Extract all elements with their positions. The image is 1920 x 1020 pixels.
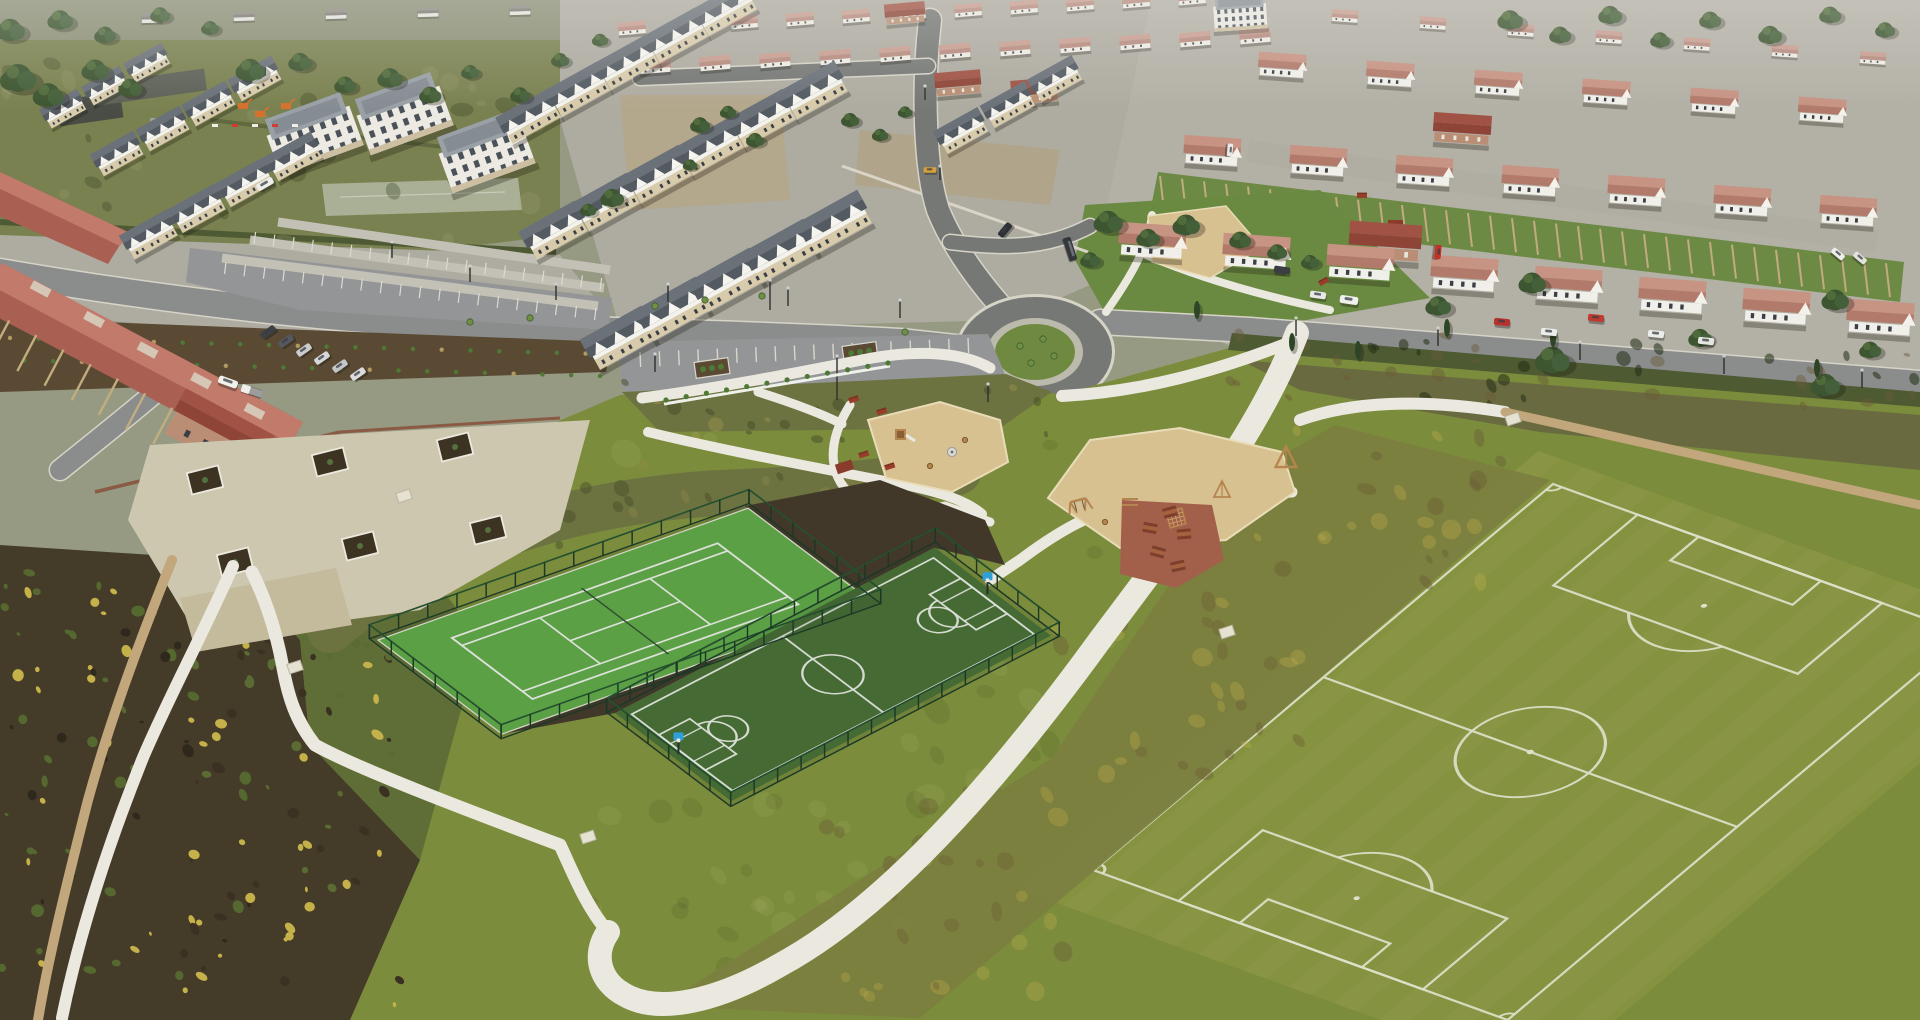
window [1288,71,1291,75]
verge-plant [468,348,472,352]
canopy [1885,26,1896,37]
canopy-highlight [583,204,589,210]
lamp-head [1722,354,1725,357]
window [1576,293,1580,298]
lamp-head [1294,316,1297,319]
house-pink [999,40,1032,60]
canopy-highlight [1084,253,1091,260]
window [720,66,722,68]
traffic-barrier [232,124,238,127]
window [1658,303,1662,308]
window [1244,40,1246,42]
window [1877,61,1879,63]
window [1218,18,1221,22]
verge-plant [411,347,415,351]
window [1870,60,1872,62]
window [824,61,826,63]
window [965,13,967,15]
car [1432,244,1442,260]
window [1246,8,1249,12]
verge-plant [555,351,559,355]
window [1028,9,1030,11]
canopy [300,57,312,69]
window [1252,39,1254,41]
canopy [520,91,531,102]
window [1239,16,1242,20]
canopy-highlight [1654,33,1661,40]
canopy [10,24,25,39]
window [917,17,919,20]
window [1604,98,1607,102]
canopy-highlight [1763,27,1771,35]
window [1124,46,1126,48]
canopy [160,11,171,22]
window [1232,17,1235,21]
window [1855,324,1859,329]
house-pink [1059,37,1092,57]
window [1200,42,1202,44]
bay-line [659,351,660,366]
cypress-body [1444,319,1450,337]
window [1064,49,1066,51]
window [1423,25,1425,27]
window [1239,8,1242,12]
car [1225,143,1234,157]
window [1430,25,1432,27]
house-gray [509,5,531,17]
bay-line [814,345,815,360]
canopy [430,91,442,103]
window [1200,157,1203,161]
window [772,63,774,65]
canopy-highlight [123,80,131,88]
screen-plant [865,364,870,369]
window [1396,80,1399,84]
window [1225,17,1228,21]
house-pink [618,21,647,39]
window [1004,52,1006,54]
window [1480,88,1483,92]
house-pink [759,52,792,72]
window [1264,260,1268,265]
canopy [612,193,624,205]
window [1190,156,1193,160]
lamp-head [1578,340,1581,343]
front [510,11,531,15]
canopy [880,132,889,141]
canopy [1870,346,1882,358]
window [1368,271,1372,276]
verge-plant [310,366,314,370]
canopy [250,64,265,79]
window [1820,116,1823,120]
sapling [902,329,908,335]
window [1712,107,1715,111]
window [1525,33,1527,35]
window [1863,60,1865,62]
canopy-highlight [1823,8,1831,16]
window [1845,218,1848,222]
sapling [1017,343,1023,349]
window [764,64,766,66]
verge-plant [497,349,501,353]
window [1739,208,1742,212]
window [1084,6,1086,8]
verge-plant [51,359,55,363]
texture-blotch [1115,757,1127,765]
canopy-highlight [685,160,690,165]
bay-line [833,344,834,359]
canopy-highlight [1703,13,1711,21]
lamp-head [653,352,656,355]
window [1431,178,1434,182]
window [1701,47,1703,49]
window [1749,208,1752,212]
bay-line [756,347,757,362]
canopy-highlight [1603,7,1611,15]
canopy-highlight [1523,274,1533,284]
window [1192,42,1194,44]
cypress-body [1194,301,1200,319]
canopy-highlight [1502,11,1511,20]
window [1080,48,1082,50]
window [958,13,960,15]
canopy [1510,15,1523,28]
sapling [759,293,765,299]
canopy [1186,220,1200,234]
front [234,17,255,21]
window [1402,176,1405,180]
window [1518,187,1521,191]
verge-plant [252,364,256,368]
canopy-highlight [1430,297,1439,306]
lamp-head [835,354,838,357]
window [1613,40,1615,42]
verge-plant [454,370,458,374]
window [1325,168,1328,172]
window [1231,258,1235,263]
window [1306,167,1309,171]
window [1335,18,1337,20]
window [1720,107,1723,111]
canopy-highlight [554,54,560,60]
verge-plant [209,341,213,345]
window [1072,48,1074,50]
window [1264,70,1267,74]
sapling [527,315,533,321]
canopy-highlight [7,66,20,79]
canopy [1108,216,1123,231]
window [1643,198,1646,202]
canopy-highlight [844,114,850,120]
basketball-hoop [676,738,680,742]
house-pink [1066,0,1095,14]
verge-plant [425,369,429,373]
canopy-highlight [1,20,11,30]
canopy [105,31,117,43]
verge-plant [281,365,285,369]
canopy-highlight [749,134,755,140]
lamp-head [468,264,471,267]
screen-plant [764,381,769,386]
canopy-highlight [1177,216,1187,226]
window [1504,89,1507,93]
window [1775,53,1777,55]
canopy [1835,295,1849,309]
canopy [1277,248,1288,259]
verge-plant [511,371,515,375]
window [1537,188,1540,192]
bench-seat [1357,194,1367,198]
sapling [1051,353,1057,359]
window [1633,198,1636,202]
aerial-photo-stage [0,0,1920,1020]
canopy [700,121,711,132]
screen-plant [704,391,709,396]
car-glass [927,168,933,170]
house-pink [1010,0,1039,17]
screen-plant [744,384,749,389]
window [1804,115,1807,119]
window [1518,32,1520,34]
window [1189,1,1191,3]
verge-plant [382,346,386,350]
window [846,19,848,21]
window [1720,206,1723,210]
canopy [1310,258,1320,268]
window [1133,4,1135,6]
window [1826,216,1829,220]
traffic-barrier [212,124,218,127]
window [1261,15,1264,19]
window [1253,260,1257,265]
window [1127,247,1131,252]
window [704,67,706,69]
window [892,57,894,59]
window [1140,3,1142,5]
window [1242,259,1246,264]
window [748,24,750,26]
verge-plant [526,350,530,354]
house-pink [1683,37,1710,53]
window [1472,282,1476,287]
canopy-highlight [204,22,210,28]
window [1782,53,1784,55]
canopy-highlight [38,84,49,95]
window [1315,168,1318,172]
canopy [1660,36,1671,47]
window [1588,97,1591,101]
window [1730,207,1733,211]
window [1357,271,1361,276]
window [629,31,631,33]
window [1596,97,1599,101]
screen-plant [825,370,830,375]
window [1231,9,1234,13]
canopy-highlight [605,190,613,198]
window [1488,88,1491,92]
canopy [755,136,765,146]
window [1012,51,1014,53]
window [1453,135,1456,140]
verge-plant [440,348,444,352]
springer [927,463,932,468]
house-pink [1419,16,1446,32]
window [1696,106,1699,110]
window [1461,282,1465,287]
window [1888,326,1892,331]
window [1508,186,1511,190]
window [636,30,638,32]
traffic-barrier [292,124,298,127]
window [960,54,962,56]
aerial-scene [0,0,1920,1020]
canopy-highlight [1233,233,1241,241]
canopy [17,71,36,90]
canopy-highlight [900,107,905,112]
window [972,12,974,14]
window [1219,158,1222,162]
window [1346,270,1350,275]
sapling [702,297,708,303]
window [1465,136,1468,141]
lamp-head [1860,368,1863,371]
screen-plant [845,367,850,372]
window [1511,32,1513,34]
window [1773,315,1777,320]
window [1021,10,1023,12]
window [1342,18,1344,20]
window [962,88,965,92]
window [1196,0,1198,2]
bench-back [1357,193,1367,195]
apartment-block [1211,0,1269,36]
house-pink [699,55,732,75]
canopy-highlight [1826,291,1836,301]
window [971,87,974,91]
window [1751,313,1755,318]
screen-plant [805,374,810,379]
canopy-highlight [694,118,701,125]
bay-line [736,348,737,363]
canopy [600,37,609,46]
window [1694,46,1696,48]
canopy [1551,353,1569,371]
spinner [948,448,957,457]
car [1587,314,1605,325]
window [1496,89,1499,93]
house-gray [417,7,439,19]
window [1224,9,1227,13]
window [1349,19,1351,21]
window [1669,304,1673,309]
window [908,18,910,21]
verge-plant [238,342,242,346]
window [1126,4,1128,6]
lamp-head [786,286,789,289]
window [1624,197,1627,201]
window [1606,39,1608,41]
cypress-body [1355,341,1361,359]
window [1260,39,1262,41]
house-pink [954,3,983,21]
window [1217,10,1220,14]
screen-plant [724,387,729,392]
verge-plant [540,372,544,376]
car [924,167,938,175]
canopy-highlight [464,66,470,72]
canopy-highlight [1863,343,1871,351]
window [1437,26,1439,28]
window [952,54,954,56]
screen-plant [784,377,789,382]
front [418,13,439,17]
canopy [1770,30,1782,42]
car [1697,337,1715,348]
house-pink [1119,34,1152,54]
park-bench [1357,193,1367,198]
verge-plant [324,344,328,348]
lamp-head [666,282,669,285]
canopy-highlight [875,129,881,135]
canopy-highlight [1541,348,1553,360]
house-pink [842,9,871,27]
window [797,22,799,24]
window [1441,135,1444,140]
canopy [588,207,597,216]
window [1138,248,1142,253]
verge-plant [8,336,12,340]
canopy [95,65,109,79]
window [1855,218,1858,222]
construction-vehicle [281,103,291,109]
window [853,19,855,21]
texture-blotch [440,73,459,91]
screen-plant [885,360,890,365]
canopy [1825,379,1840,394]
construction-vehicle [238,103,248,109]
canopy [1830,11,1842,23]
window [1253,15,1256,19]
canopy-highlight [98,28,106,36]
house-pink [786,12,815,30]
window [1296,166,1299,170]
window [1877,326,1881,331]
window [790,22,792,24]
sapling [467,319,473,325]
sapling [1040,336,1046,342]
window [1612,98,1615,102]
canopy [905,109,913,117]
window [1704,106,1707,110]
window [1565,293,1569,298]
window [1599,39,1601,41]
window [1388,80,1391,84]
window [1380,79,1383,83]
house-pink [1859,51,1886,67]
canopy [1532,278,1546,292]
canopy-highlight [1879,23,1886,30]
window [1680,304,1684,309]
canopy [130,83,142,95]
canopy-highlight [1304,256,1310,262]
sapling [652,303,658,309]
lamp-head [390,240,393,243]
canopy [47,89,63,105]
window [1762,314,1766,319]
canopy [1560,31,1572,43]
window [1260,7,1263,11]
